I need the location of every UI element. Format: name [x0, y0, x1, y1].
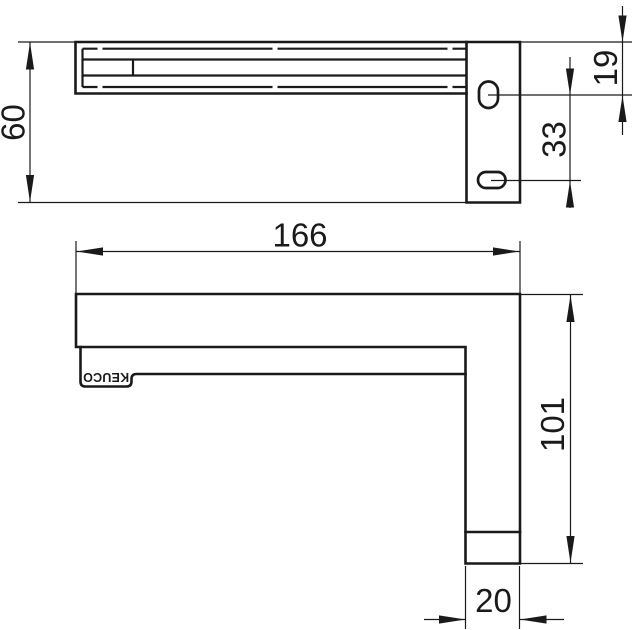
dimension-width-20: 20: [424, 566, 564, 629]
arrowhead-up: [26, 43, 34, 70]
arrowhead-up: [566, 181, 574, 208]
dimension-label-166: 166: [272, 217, 327, 254]
side-view: KEUCO: [76, 294, 520, 564]
top-view: [76, 42, 521, 203]
arrowhead-down: [566, 69, 574, 96]
arrowhead-left: [77, 247, 104, 255]
arrowhead-right: [493, 247, 520, 255]
top-view-outline: [76, 42, 521, 203]
dimension-label-60: 60: [0, 104, 32, 141]
brand-logo-text: KEUCO: [83, 370, 129, 384]
dimension-label-101: 101: [534, 397, 571, 452]
technical-drawing-page: 60 19 33 KEUCO: [0, 0, 633, 630]
arrowhead-down: [26, 175, 34, 202]
dimension-drawing: 60 19 33 KEUCO: [0, 0, 633, 630]
arrowhead-right: [439, 615, 466, 623]
side-view-outline: [76, 294, 520, 564]
lower-rail-profile: [81, 347, 466, 387]
dimension-label-19: 19: [587, 50, 624, 87]
arrowhead-down: [618, 16, 626, 43]
dimension-depth-60: 60: [0, 42, 467, 203]
arrowhead-down: [566, 536, 574, 563]
dimension-height-101: 101: [521, 295, 583, 564]
arrowhead-up: [566, 295, 574, 322]
arrowhead-up: [618, 96, 626, 123]
arrowhead-left: [520, 615, 547, 623]
dimension-length-166: 166: [76, 217, 520, 294]
dimension-label-20: 20: [475, 582, 512, 619]
dimension-slot-offsets: 19 33: [488, 6, 632, 208]
dimension-label-33: 33: [536, 121, 573, 158]
